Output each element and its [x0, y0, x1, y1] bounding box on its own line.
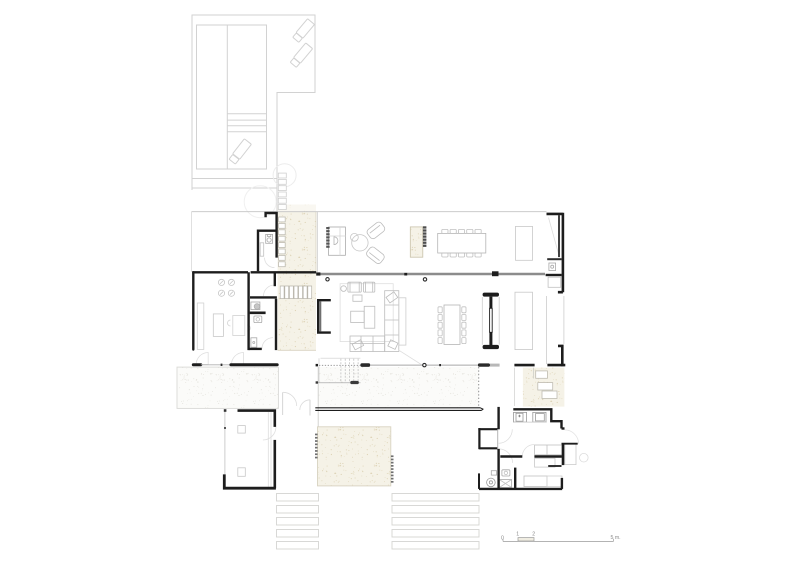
svg-text:1: 1 — [516, 532, 519, 538]
svg-text:5 m.: 5 m. — [611, 535, 621, 541]
svg-text:2: 2 — [532, 532, 535, 538]
svg-text:0: 0 — [501, 536, 504, 542]
